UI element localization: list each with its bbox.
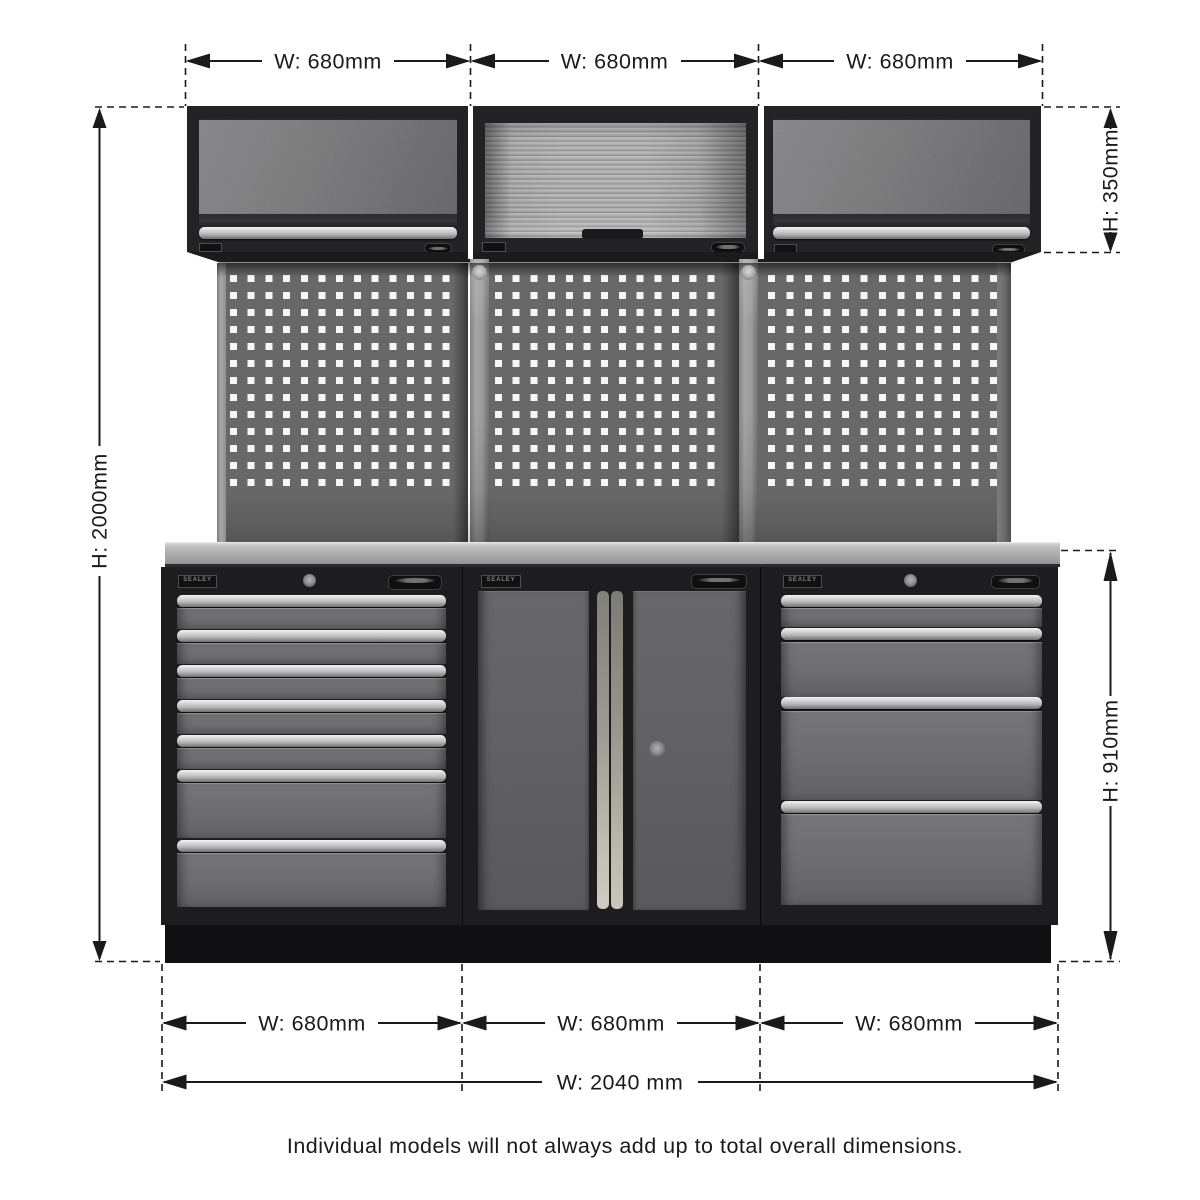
svg-text:W: 680mm: W: 680mm: [258, 1012, 366, 1036]
svg-text:W: 680mm: W: 680mm: [846, 50, 954, 74]
svg-text:W: 680mm: W: 680mm: [274, 50, 382, 74]
svg-text:H: 350mm: H: 350mm: [1099, 129, 1123, 232]
svg-text:W: 2040 mm: W: 2040 mm: [557, 1071, 683, 1095]
svg-text:W: 680mm: W: 680mm: [557, 1012, 665, 1036]
svg-text:H: 910mm: H: 910mm: [1099, 699, 1123, 802]
svg-text:H: 2000mm: H: 2000mm: [88, 453, 112, 569]
svg-text:W: 680mm: W: 680mm: [855, 1012, 963, 1036]
svg-text:Individual models will not alw: Individual models will not always add up…: [287, 1134, 963, 1158]
svg-text:W: 680mm: W: 680mm: [561, 50, 669, 74]
